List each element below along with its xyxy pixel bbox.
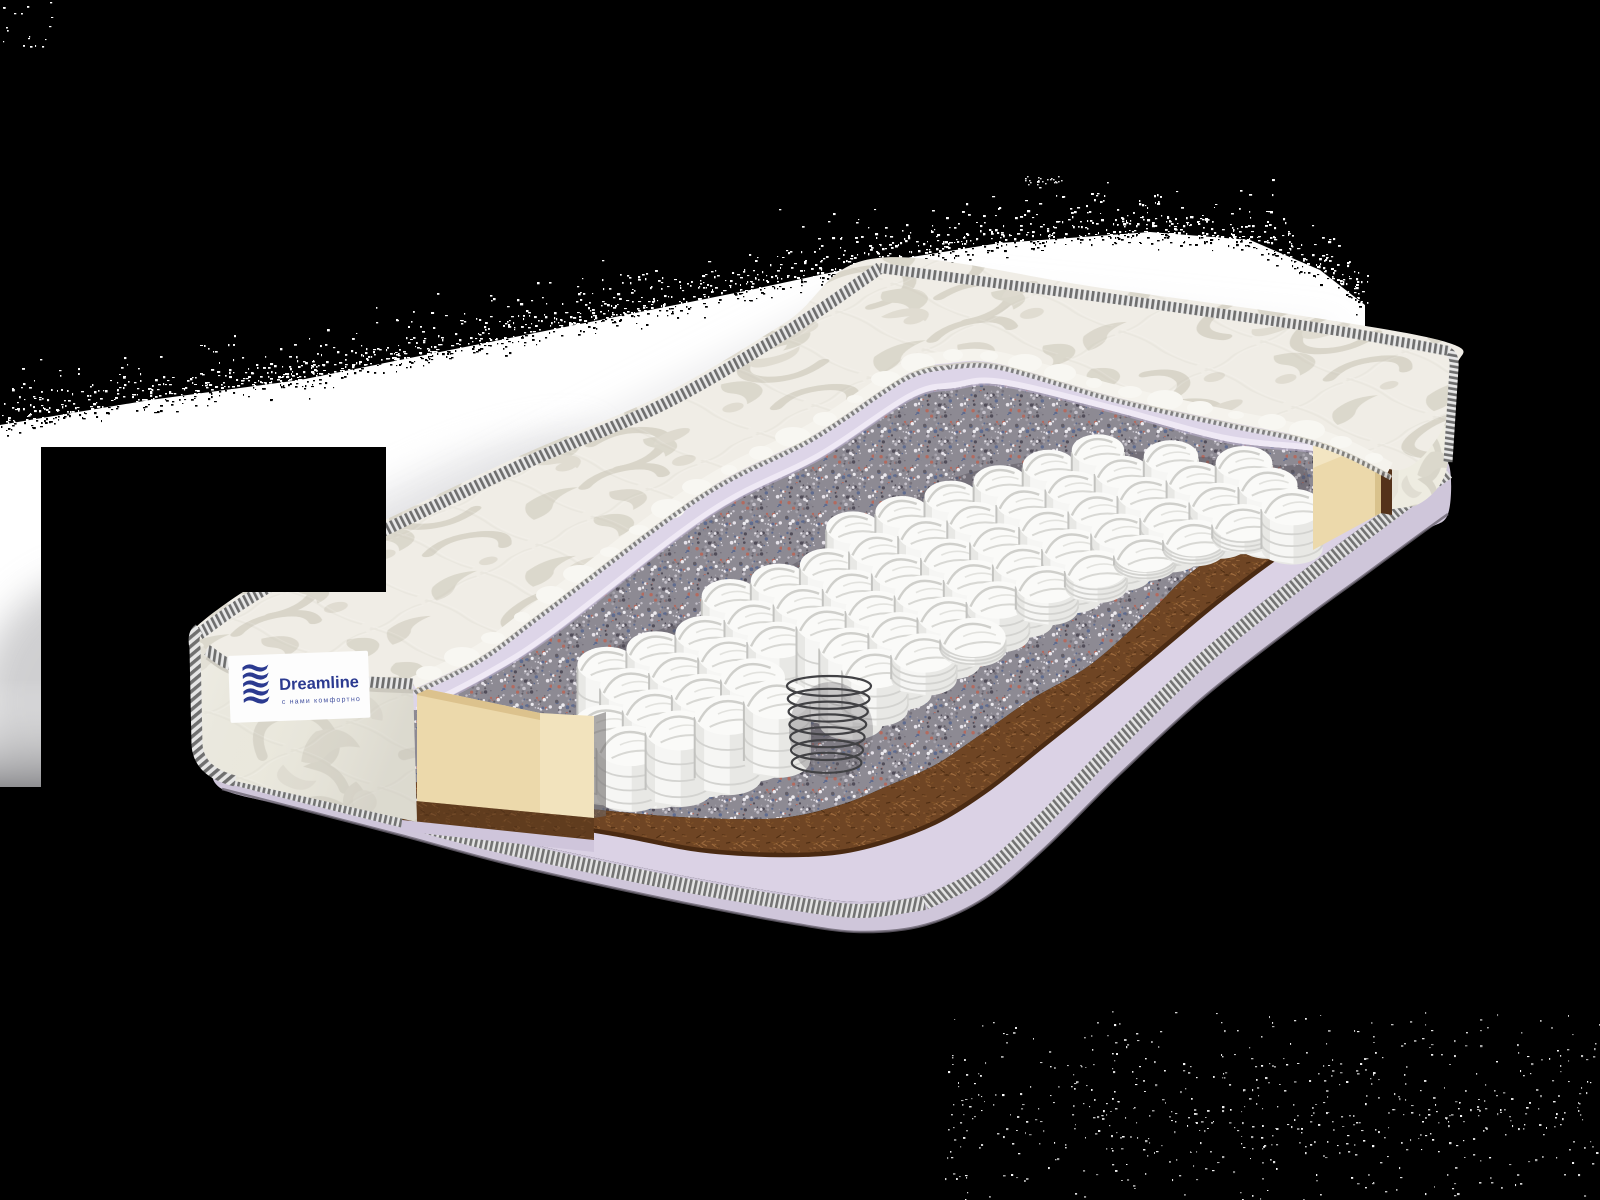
svg-text:Dreamline: Dreamline <box>279 673 359 694</box>
